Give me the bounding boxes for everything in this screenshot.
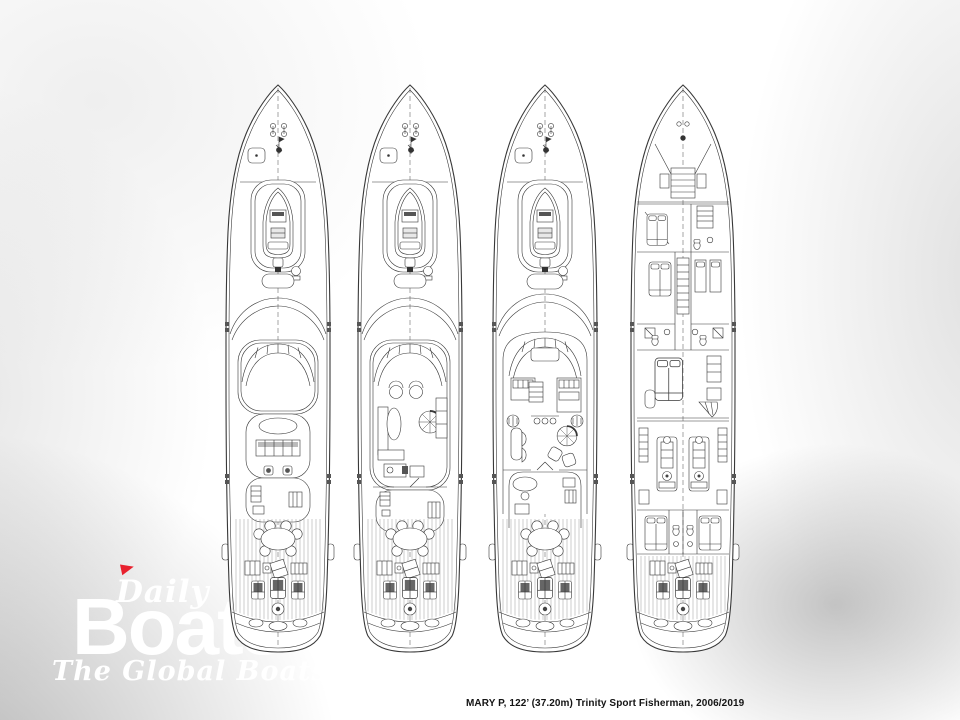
watermark-daily-text: Daily (116, 574, 210, 610)
deck-plan-lower (627, 85, 739, 652)
red-flag-icon (120, 562, 135, 575)
page: { "caption": { "text": "MARY P, 122’ (37… (0, 0, 960, 720)
deck-plan-hardtop (222, 85, 334, 652)
deck-plan-flybridge (354, 85, 466, 652)
caption-text: MARY P, 122’ (37.20m) Trinity Sport Fish… (466, 698, 744, 709)
watermark-tagline-text: The Global Boats (52, 656, 328, 687)
yacht-deck-plans-image (210, 80, 750, 660)
deck-plan-main (489, 85, 601, 652)
